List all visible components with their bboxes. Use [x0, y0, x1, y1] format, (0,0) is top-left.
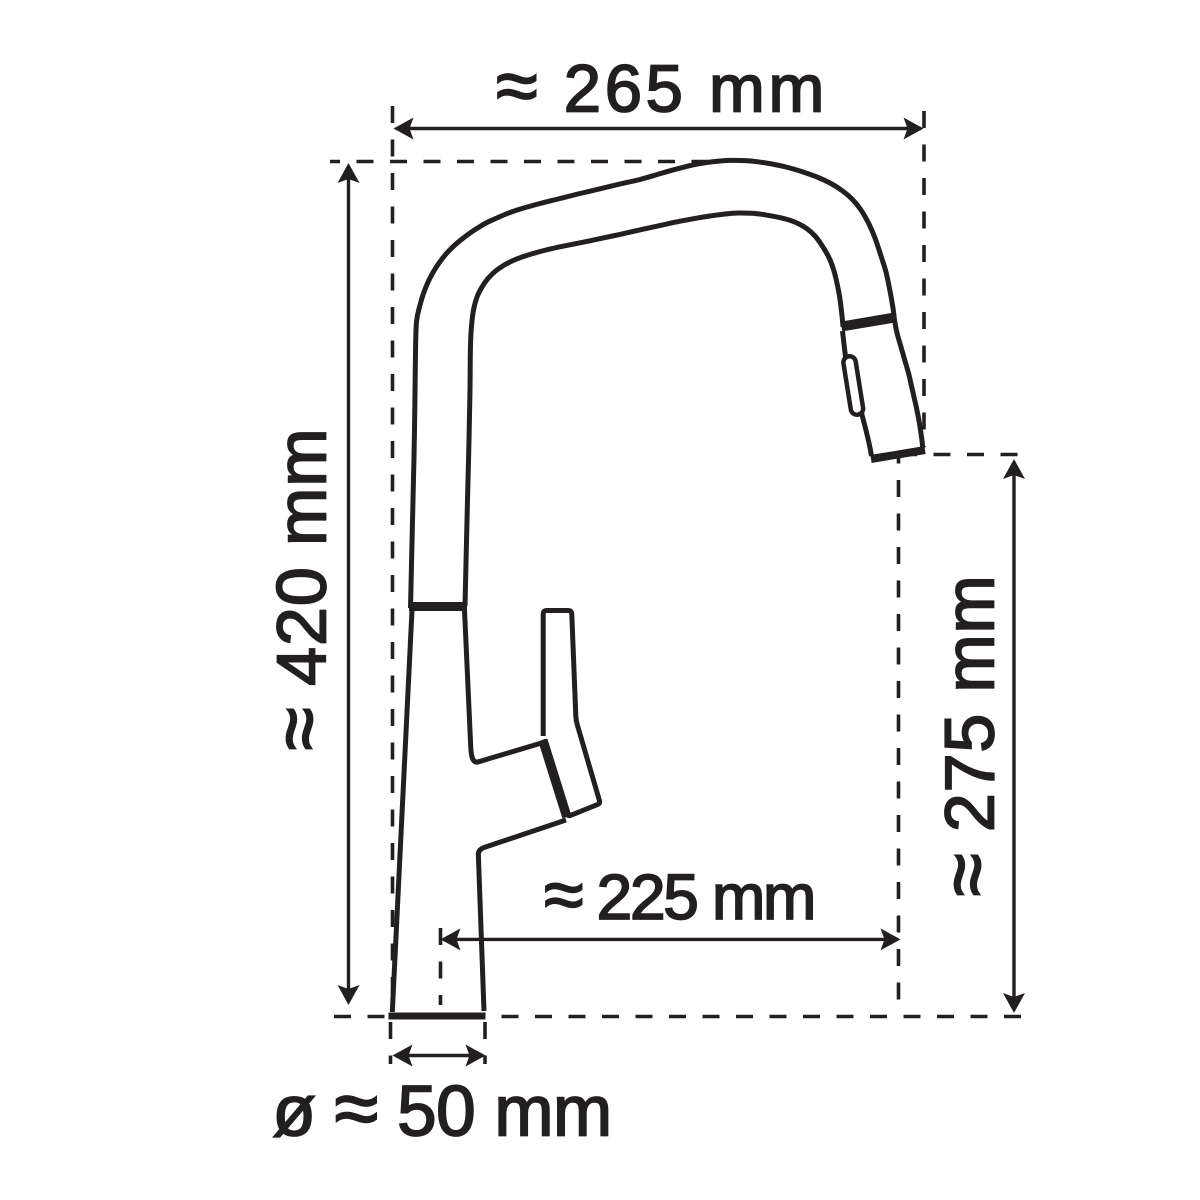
svg-text:≈ 275 mm: ≈ 275 mm — [922, 574, 1011, 896]
svg-text:≈ 225 mm: ≈ 225 mm — [544, 855, 814, 935]
svg-text:ø ≈ 50 mm: ø ≈ 50 mm — [272, 1064, 611, 1153]
svg-text:≈ 420 mm: ≈ 420 mm — [254, 428, 343, 751]
svg-text:≈ 265 mm: ≈ 265 mm — [496, 44, 828, 129]
